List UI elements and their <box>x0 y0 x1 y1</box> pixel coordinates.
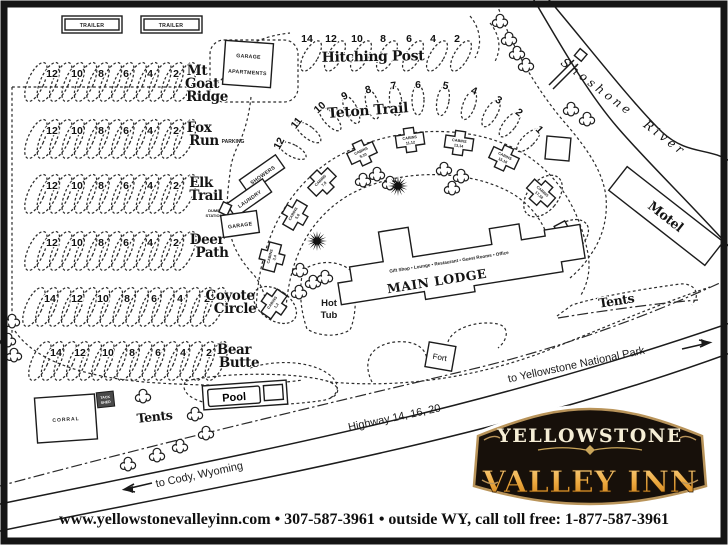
site-number: 14 <box>50 347 62 359</box>
tree-center <box>296 267 303 274</box>
campsite-loop <box>96 285 128 330</box>
site-number: 8 <box>98 125 104 137</box>
campsite-loop <box>108 285 140 330</box>
site-number: 12 <box>46 180 58 192</box>
site-number: 12 <box>46 68 58 80</box>
tree-icon <box>563 102 578 116</box>
camp-row-coyote-circle: 1412108642CoyoteCircle <box>18 285 256 330</box>
river-label: Shoshone River <box>558 55 689 159</box>
site-number: 6 <box>123 125 129 137</box>
cabin: CABINS1,2 <box>256 286 292 323</box>
tree-center <box>496 18 503 25</box>
trailer-2-label: TRAILER <box>159 23 184 29</box>
tree-icon <box>501 32 516 46</box>
area-label: Ridge <box>186 89 228 105</box>
site-number: 12 <box>325 33 337 45</box>
pool-label: Pool <box>222 391 247 405</box>
campsite-loop <box>173 285 205 330</box>
tree-icon <box>317 270 332 284</box>
tree-center <box>567 106 574 113</box>
garage: GARAGE <box>221 211 260 238</box>
area-label: Path <box>196 245 230 261</box>
site-number: 8 <box>98 180 104 192</box>
site-number: 4 <box>180 347 186 359</box>
cabin-building <box>278 197 313 233</box>
site-number: 10 <box>97 293 109 305</box>
tents-left-label: Tents <box>136 407 173 426</box>
site-number: 8 <box>98 237 104 249</box>
trailer-box-1: TRAILER <box>62 16 122 33</box>
campsite-loop <box>134 285 166 330</box>
fort-yard-left <box>368 342 427 382</box>
campsite-loop <box>446 38 475 74</box>
camp-row-bear-butte: 1412108642BearButte <box>24 339 259 384</box>
highway-label: Highway 14, 16, 20 <box>347 402 442 433</box>
tree-icon <box>198 426 213 440</box>
site-number: 2 <box>173 68 179 80</box>
contact-bar: www.yellowstonevalleyinn.com • 307-587-3… <box>59 511 669 528</box>
to-yellowstone-label: to Yellowstone National Park <box>507 345 646 386</box>
site-number: 10 <box>71 125 83 137</box>
sign-line2: VALLEY INN <box>481 465 697 500</box>
site-number: 6 <box>415 79 421 91</box>
tree-center <box>139 393 146 400</box>
to-cody-label: to Cody, Wyoming <box>155 460 245 490</box>
tree-center <box>153 452 160 459</box>
tree-icon <box>355 173 370 187</box>
campground-map: Shoshone River Highway 14, 16, 20 to Cod… <box>0 0 728 545</box>
site-number: 2 <box>173 125 179 137</box>
tree-icon <box>291 285 306 299</box>
tree-icon <box>369 167 384 181</box>
cabin-building <box>394 126 425 154</box>
site-number: 6 <box>123 180 129 192</box>
tree-center <box>176 443 183 450</box>
site-number: 6 <box>123 68 129 80</box>
site-number: 8 <box>364 84 373 97</box>
tree-icon <box>135 389 150 403</box>
parking-label: PARKING <box>222 139 245 145</box>
site-number: 4 <box>147 68 153 80</box>
site-number: 10 <box>71 180 83 192</box>
tree-center <box>522 62 529 69</box>
site-number: 10 <box>102 347 114 359</box>
tree-center <box>10 352 17 359</box>
area-label: Run <box>189 133 219 149</box>
site-number: 2 <box>513 106 525 119</box>
site-number: 4 <box>147 180 153 192</box>
site-number: 10 <box>351 33 363 45</box>
site-number: 2 <box>173 180 179 192</box>
pool-shed <box>263 384 283 400</box>
site-number: 12 <box>46 125 58 137</box>
site-number: 6 <box>155 347 161 359</box>
tack-shed: TACK SHED <box>96 391 114 408</box>
tree-center <box>513 50 520 57</box>
site-number: 2 <box>454 33 460 45</box>
site-number: 6 <box>406 33 412 45</box>
site-number: 14 <box>301 33 313 45</box>
site-number: 2 <box>206 347 212 359</box>
area-label: Trail <box>189 188 222 204</box>
tree-center <box>359 177 366 184</box>
corral: CORRAL <box>34 394 97 443</box>
cabin-building <box>304 164 341 201</box>
hot-tub-label-1: Hot <box>321 298 338 309</box>
campsite-loop <box>70 285 102 330</box>
road-hitching-spur-2 <box>490 23 499 63</box>
tree-center <box>448 185 455 192</box>
area-label: Butte <box>219 355 259 371</box>
fort: Fort <box>425 342 456 371</box>
trailer-box-2: TRAILER <box>141 16 202 33</box>
fort-yard-right <box>448 323 506 348</box>
road-hitching-spur-1 <box>470 16 480 58</box>
site-number: 12 <box>71 293 83 305</box>
site-number: 8 <box>124 293 130 305</box>
to-yellowstone-arrowhead <box>701 339 710 347</box>
campsite-loop <box>83 285 115 330</box>
site-number: 7 <box>390 80 398 93</box>
site-number: 8 <box>98 68 104 80</box>
road-east-sweep <box>330 287 710 384</box>
motel: Motel <box>609 167 724 266</box>
site-number: 12 <box>74 347 86 359</box>
tree-center <box>124 461 131 468</box>
site-number: 4 <box>147 237 153 249</box>
campsite-loop <box>422 38 451 74</box>
tree-icon <box>509 46 524 60</box>
tree-icon <box>120 457 135 471</box>
tree-icon <box>6 348 21 362</box>
trailer-1-label: TRAILER <box>80 23 105 29</box>
site-number: 6 <box>151 293 157 305</box>
tree-center <box>8 318 15 325</box>
site-number: 4 <box>147 125 153 137</box>
tree-icon <box>492 14 507 28</box>
site-number: 4 <box>430 33 436 45</box>
tree-icon <box>187 407 202 421</box>
hot-tub-label-2: Tub <box>321 310 338 321</box>
campground-map-page: Shoshone River Highway 14, 16, 20 to Cod… <box>0 0 728 545</box>
campsite-loop <box>57 285 89 330</box>
river-far-bank <box>545 0 728 162</box>
teton-trail-label: Teton Trail <box>327 100 409 122</box>
site-number: 2 <box>173 237 179 249</box>
site-number: 3 <box>493 94 504 107</box>
tree-center <box>373 171 380 178</box>
sign-line1: YELLOWSTONE <box>496 425 682 447</box>
area-label: Circle <box>214 301 257 317</box>
tree-center <box>505 36 512 43</box>
cabins-arc: CABINS1,2CABINS3,4CABINS5,6CABINS7,8CABI… <box>247 126 596 331</box>
main-lodge: Gift Shop • Lounge • Restaurant • Guest … <box>331 201 588 313</box>
tree-icon <box>579 112 594 126</box>
site-number: 10 <box>312 99 329 116</box>
cabin: CABINS13,14 <box>443 129 474 157</box>
pool: Pool <box>202 380 287 410</box>
garage-apartments-building <box>223 40 274 87</box>
camp-row-mt-goat-ridge: 12108642MtGoatRidge <box>20 60 228 105</box>
cabin-building <box>486 141 522 175</box>
tree-icon <box>436 162 451 176</box>
campsite-loop <box>121 285 153 330</box>
campsite-loop <box>31 285 63 330</box>
yellowstone-valley-inn-sign: YELLOWSTONE VALLEY INN <box>474 409 706 504</box>
tree-center <box>295 289 302 296</box>
tree-center <box>457 173 464 180</box>
campsite-loop <box>147 285 179 330</box>
tree-icon <box>453 169 468 183</box>
cabin: CABINS7,8 <box>304 164 341 201</box>
site-number: 4 <box>177 293 183 305</box>
dock-hut <box>574 49 587 62</box>
cabin-building <box>256 286 292 323</box>
hitching-post-label: Hitching Post <box>322 48 426 66</box>
shoshone-river: Shoshone River <box>531 0 728 252</box>
cabin-building <box>443 129 474 157</box>
campsite-loop <box>44 285 76 330</box>
river-near-bank <box>531 0 728 252</box>
conifer-icon <box>307 231 327 251</box>
tree-icon <box>292 263 307 277</box>
main-lodge-building <box>331 201 588 313</box>
tree-center <box>440 166 447 173</box>
campsite-loop <box>160 285 192 330</box>
tree-icon <box>444 181 459 195</box>
site-number: 1 <box>533 124 546 137</box>
cabin: CABINS11,12 <box>394 126 425 154</box>
site-number: 14 <box>44 293 56 305</box>
tree-center <box>321 274 328 281</box>
tree-center <box>202 430 209 437</box>
cabin: CABINS5,6 <box>278 197 313 233</box>
site-number: 6 <box>123 237 129 249</box>
tack-shed-building <box>96 391 114 408</box>
site-number: 12 <box>46 237 58 249</box>
tree-center <box>583 116 590 123</box>
tree-center <box>309 279 316 286</box>
site-number: 4 <box>469 85 479 98</box>
conifer-icon <box>388 176 408 196</box>
site-number: 10 <box>71 237 83 249</box>
camp-row-fox-run: 12108642FoxRun <box>20 117 219 162</box>
camp-row-deer-path: 12108642DeerPath <box>20 229 229 274</box>
tree-icon <box>149 448 164 462</box>
site-number: 8 <box>380 33 386 45</box>
tree-icon <box>518 58 533 72</box>
tree-center <box>191 411 198 418</box>
pump-house-building <box>545 136 571 161</box>
site-number: 11 <box>288 115 304 131</box>
site-number: 9 <box>339 90 350 103</box>
camp-row-elk-trail: 12108642ElkTrail <box>20 172 223 217</box>
garage-apartments: GARAGE APARTMENTS <box>223 40 274 87</box>
site-number: 8 <box>129 347 135 359</box>
site-number: 10 <box>71 68 83 80</box>
site-number: 12 <box>271 135 287 151</box>
campsite-loop <box>18 285 50 330</box>
cabin: CABINS15,16 <box>486 141 522 175</box>
